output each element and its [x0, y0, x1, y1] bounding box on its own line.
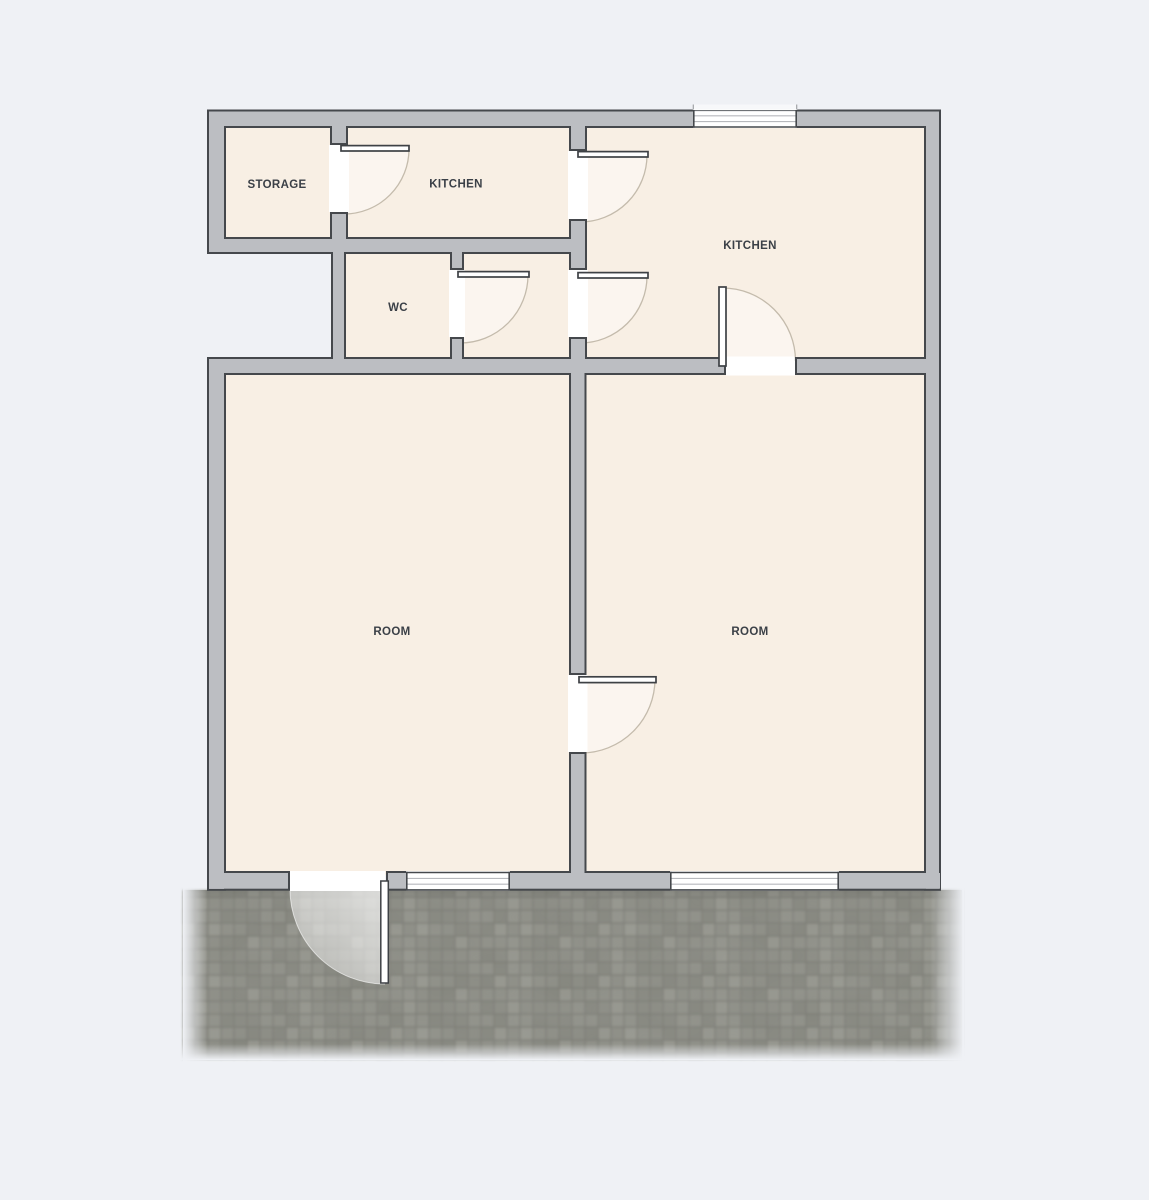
svg-text:WC: WC — [388, 302, 408, 314]
svg-text:KITCHEN: KITCHEN — [723, 240, 777, 252]
svg-text:ROOM: ROOM — [731, 626, 768, 638]
svg-text:ROOM: ROOM — [373, 626, 410, 638]
svg-text:KITCHEN: KITCHEN — [429, 179, 483, 191]
svg-text:STORAGE: STORAGE — [247, 179, 306, 191]
